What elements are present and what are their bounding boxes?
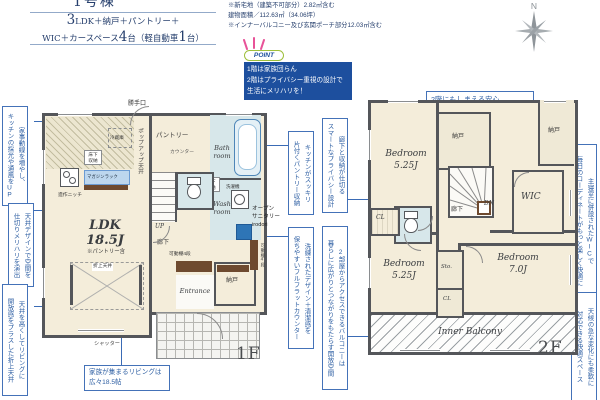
stairs-1f	[152, 172, 177, 222]
callout-pantry-storage: キッチンがスッキリ 片付くパントリー収納	[288, 131, 314, 215]
callout-balcony-access: 2部屋からアクセスできるバルコニーは 暮らしに広がりとつながりをもたらす開放空間	[322, 226, 348, 390]
callout-coffered-ceiling: 天井を高くしてリビングに 開放感をプラスした折上天井	[2, 284, 28, 396]
window	[42, 268, 45, 298]
point-badge: POINT	[244, 50, 284, 61]
floor1-title: 1F	[236, 344, 261, 364]
window	[569, 255, 572, 285]
refrigerator-label: 冷蔵庫	[110, 134, 124, 142]
window	[226, 113, 252, 116]
floor-storage-label: 床下 収納	[84, 150, 102, 165]
wall	[458, 243, 575, 246]
stairs-dn-label: DN	[484, 200, 494, 207]
svg-text:N: N	[531, 1, 537, 11]
sparkle-rays-icon	[243, 36, 267, 51]
washroom-label: Wash room	[211, 200, 233, 216]
ldk-label: LDK 18.5J	[70, 218, 140, 248]
sto-label: Sto.	[441, 264, 452, 270]
coffered-ceiling-label: 折上天井	[92, 263, 113, 271]
washing-machine-drum-icon	[234, 194, 245, 205]
shelf-block	[250, 240, 258, 270]
bathroom-label: Bath room	[210, 144, 234, 160]
hallway-label-2f: 廊下	[451, 207, 463, 215]
storage-label-1f: 納戸	[226, 278, 238, 286]
area-note-3: ※インナーバルコニー及び玄関ポーチ部分12.03㎡含む	[228, 21, 382, 30]
toilet-icon	[187, 184, 201, 199]
ldk-note: ※パントリー含	[76, 249, 136, 257]
divider	[30, 44, 216, 45]
plan-spec: 3LDK＋納戸＋パントリー＋ WIC＋カースペース4台（軽自動車1台）	[30, 13, 216, 47]
shelf-block	[217, 265, 249, 272]
window	[400, 349, 440, 352]
closet-w-label: CL	[376, 214, 385, 221]
callout-kitchen-flow: 家事動線を増やし、 キッチンの採光や通風をUP	[2, 106, 28, 206]
storage-label-2f-ne: 納戸	[548, 128, 560, 136]
window	[544, 100, 566, 103]
storage-label-2f-mid: 納戸	[452, 134, 464, 142]
magazine-rack-label: マガジンラック	[87, 173, 118, 181]
compass-icon: N	[508, 0, 560, 56]
wall	[139, 265, 142, 305]
stove-burner-icon	[69, 177, 76, 184]
door-arc	[130, 106, 149, 125]
inner-balcony-label: Inner Balcony	[405, 327, 535, 337]
point-note: 1階は家族団らん 2階はプライバシー重視の設計で 生活にメリハリを！	[244, 62, 352, 100]
entrance-label: Entrance	[177, 287, 213, 295]
window	[368, 258, 371, 288]
area-note-2: 建物面積／112.63㎡（34.06坪）	[228, 11, 319, 20]
stove-burner-icon	[63, 171, 70, 178]
bedroom-se-label: Bedroom 7.0J	[486, 252, 550, 276]
toilet-icon	[404, 218, 418, 233]
window	[368, 130, 371, 160]
callout-ceiling-design: 天井デザインで空間を 仕切りメリハリを演出	[8, 203, 34, 287]
window	[58, 113, 92, 116]
callout-living-size: 家族が集まるリビングは 広々18.5帖	[84, 365, 170, 391]
shelf-label-h: 可動棚4段	[169, 251, 191, 259]
closet-mid-label: CL	[443, 296, 451, 302]
window	[388, 100, 418, 103]
bedroom-sw-label: Bedroom 5.25J	[372, 258, 436, 282]
storage-sto	[436, 250, 464, 292]
area-note-1: ※新宅地（建築不可部分）2.82㎡含む	[228, 1, 335, 10]
floorplan-flyer: 1号棟 3LDK＋納戸＋パントリー＋ WIC＋カースペース4台（軽自動車1台） …	[0, 0, 600, 400]
bedroom-nw-label: Bedroom 5.25J	[374, 148, 438, 172]
counter-label: カウンター	[170, 149, 194, 157]
window	[42, 150, 45, 184]
shelf-block	[176, 261, 212, 272]
window	[490, 349, 530, 352]
floor2-title: 2F	[538, 338, 563, 358]
wall	[70, 265, 73, 305]
plan-spec-line1: 3LDK＋納戸＋パントリー＋	[30, 13, 216, 30]
window	[569, 190, 572, 216]
shelf-label-v: 可動棚4段	[258, 243, 266, 275]
pantry-label: パントリー	[156, 132, 188, 140]
popup-ceiling-label: ポップアップ天井	[135, 128, 143, 216]
vanity-icon	[236, 224, 252, 240]
callout-flat-counter: 洗練されたデザイン＋清潔感を 保ちやすいフルフラットカウンター	[288, 227, 314, 349]
unit-number: 1号棟	[73, 0, 116, 11]
callout-privacy-design: 廊下と収納が仕切る スマートなプライバシー設計	[322, 118, 348, 213]
closet-mid	[436, 288, 464, 318]
bathtub-inner	[238, 124, 257, 170]
window	[78, 329, 124, 332]
closet-w	[370, 208, 400, 236]
niche-counter	[84, 185, 128, 190]
shutter-label: シャッター	[94, 341, 120, 349]
open-sanitary-label: オープン サニタリー irodori	[252, 205, 280, 229]
niche-label: 造作ニッチ	[58, 192, 82, 200]
wic-label: WIC	[521, 192, 541, 202]
